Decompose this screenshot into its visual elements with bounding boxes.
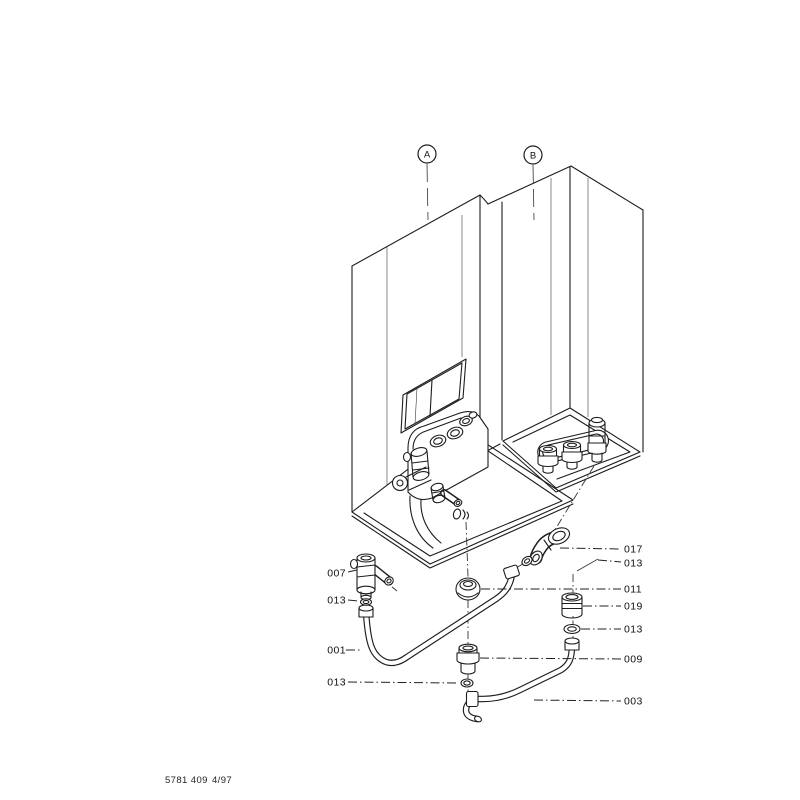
footer-edition: 4/97 xyxy=(212,775,232,786)
marker-a-leader xyxy=(427,164,428,220)
callout-label-013-left-lower: 013 xyxy=(327,677,346,689)
leader-017 xyxy=(560,548,621,549)
callout-label-013-left-upper: 013 xyxy=(327,595,346,607)
pipe-001-union-nut xyxy=(359,605,373,617)
footer-document-number: 5781 409 xyxy=(165,775,208,786)
leader-013-left-lower xyxy=(348,682,459,683)
marker-b-leader xyxy=(533,165,534,220)
bracket-pivot xyxy=(393,476,408,491)
part-007-valve xyxy=(351,554,395,600)
leader-013-left-upper xyxy=(348,600,359,601)
part-011-fitting xyxy=(456,578,480,600)
part-013-oring-left-upper xyxy=(361,599,372,605)
part-009-fitting xyxy=(457,644,479,674)
part-013-oring-left-lower xyxy=(461,679,473,687)
part-013-washer-right-middle xyxy=(564,625,580,634)
leader-003 xyxy=(534,700,621,701)
leader-007 xyxy=(348,570,357,572)
leader-009 xyxy=(480,658,621,659)
exploded-parts-diagram-page: 007 013 001 013 017 013 011 019 013 009 … xyxy=(0,0,800,800)
pipe-003-top-nut xyxy=(565,638,579,650)
part-003-pipe xyxy=(466,638,579,723)
part-019-nipple xyxy=(562,593,582,618)
pipe-001-end-nut xyxy=(503,565,520,580)
part-017-elbow xyxy=(527,525,572,568)
exploded-parts-diagram: 007 013 001 013 017 013 011 019 013 009 … xyxy=(0,0,800,800)
callout-leaders xyxy=(346,548,621,701)
callout-label-007: 007 xyxy=(327,568,346,580)
callout-label-013-right-upper: 013 xyxy=(624,558,643,570)
leader-013-right-upper xyxy=(598,560,621,562)
callout-label-003: 003 xyxy=(624,696,643,708)
callout-label-009: 009 xyxy=(624,654,643,666)
marker-a-label: A xyxy=(424,150,431,161)
callout-label-019: 019 xyxy=(624,601,643,613)
callout-label-013-right-middle: 013 xyxy=(624,624,643,636)
callout-label-001: 001 xyxy=(327,645,346,657)
callout-label-017: 017 xyxy=(624,544,643,556)
unit-b-cabinet xyxy=(488,166,643,452)
marker-b-label: B xyxy=(530,151,536,162)
footer: 5781 409 4/97 xyxy=(165,775,232,786)
pipe-003-mid-nut xyxy=(467,692,479,707)
callout-label-011: 011 xyxy=(624,584,642,596)
